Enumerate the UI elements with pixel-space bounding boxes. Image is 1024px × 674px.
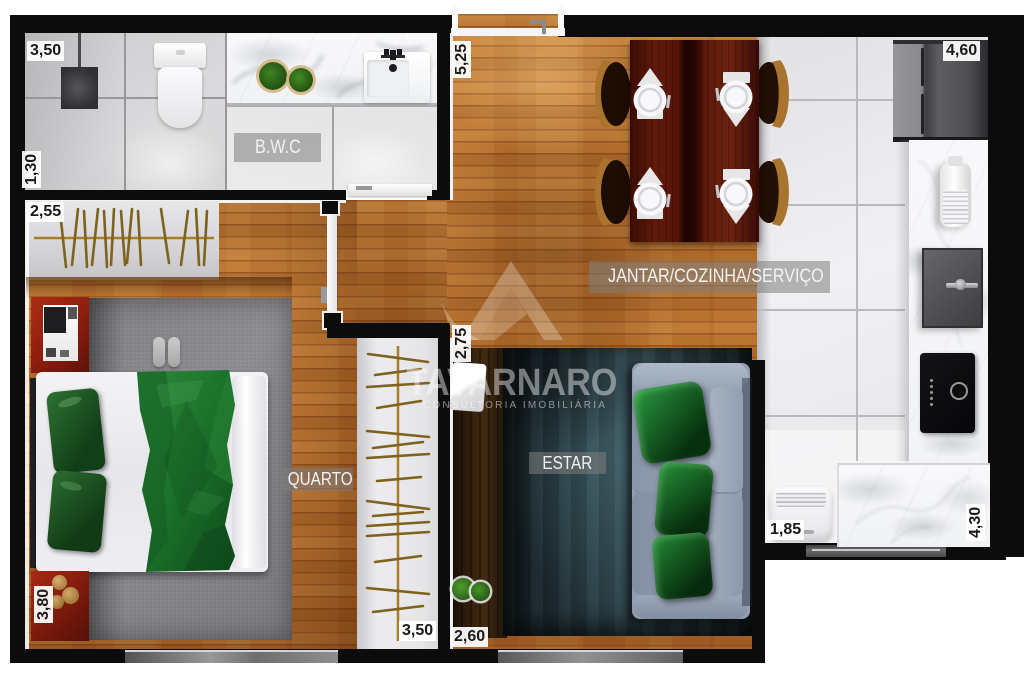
svg-text:TAVARNARO: TAVARNARO (407, 360, 618, 403)
svg-text:CONSULTORIA IMOBILIÁRIA: CONSULTORIA IMOBILIÁRIA (423, 398, 607, 411)
